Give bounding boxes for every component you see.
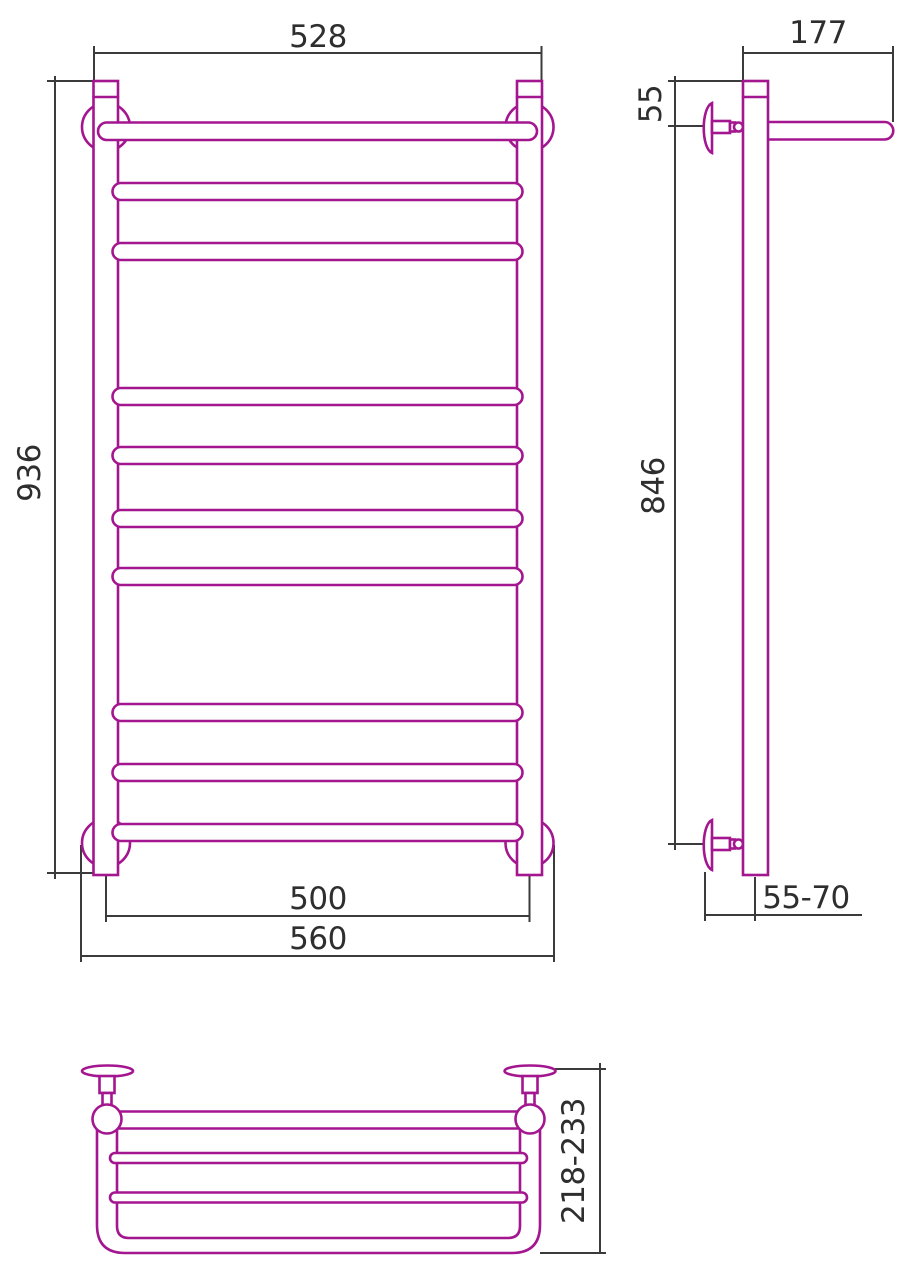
top-product (82, 1066, 556, 1254)
dim-label-axis-width: 500 (289, 881, 347, 917)
front-product (82, 81, 554, 875)
side-bracket-top-ball (734, 123, 743, 132)
dim-label-shelf-depth: 177 (789, 15, 847, 51)
rung (113, 183, 523, 200)
dim-label-shelf-total-depth: 218-233 (556, 1098, 592, 1224)
rung (113, 764, 523, 781)
post-right (517, 81, 542, 875)
top-bracket-left-stem (100, 1076, 115, 1093)
side-post (743, 81, 768, 875)
shelf-top-bar (107, 1112, 530, 1129)
side-bracket-top-stem (712, 121, 730, 133)
side-product (704, 81, 894, 875)
rungs (113, 183, 523, 841)
dim-label-overall-width: 560 (289, 921, 347, 957)
rung-bottom (113, 824, 523, 841)
rung (113, 510, 523, 527)
dim-label-wall-distance: 55-70 (762, 880, 850, 916)
side-bracket-bottom-stem (712, 838, 730, 850)
rung (113, 568, 523, 585)
shelf-middle-bar (110, 1153, 527, 1163)
drawing-page: 528 936 500 560 (0, 0, 914, 1280)
side-dimension-lines (668, 46, 893, 921)
rung (113, 704, 523, 721)
front-view: 528 936 500 560 (12, 19, 554, 962)
dim-label-mount-height: 846 (636, 457, 672, 515)
rung (113, 447, 523, 464)
technical-drawing: 528 936 500 560 (0, 0, 914, 1280)
rung (113, 243, 523, 260)
shelf-middle-bar (110, 1193, 527, 1203)
shelf-side-bar (755, 122, 893, 140)
rung (113, 388, 523, 405)
top-bracket-right-stem (523, 1076, 538, 1093)
shelf-frame-outer (97, 1119, 540, 1253)
swivel-ball-left (93, 1105, 122, 1134)
side-bracket-bottom-ball (734, 840, 743, 849)
post-left (94, 81, 119, 875)
shelf-frame-inner (117, 1119, 520, 1238)
dim-label-height: 936 (12, 444, 48, 502)
shelf-front-bar (98, 123, 537, 141)
side-view: 177 55 846 55-70 (633, 15, 893, 921)
top-view: 218-233 (82, 1063, 606, 1253)
swivel-ball-right (516, 1105, 545, 1134)
dim-label-top-offset: 55 (633, 85, 669, 123)
dim-label-top-width: 528 (289, 19, 347, 55)
